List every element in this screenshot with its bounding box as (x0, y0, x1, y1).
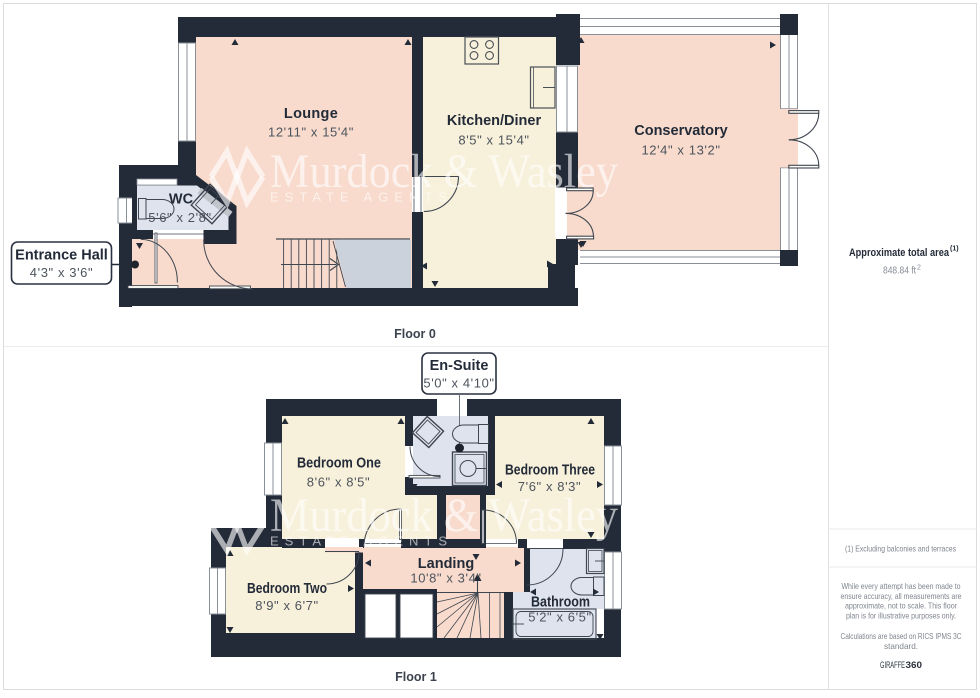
svg-text:Lounge: Lounge (284, 106, 338, 122)
svg-text:Bedroom One: Bedroom One (297, 456, 381, 472)
svg-text:5'2" x 6'5": 5'2" x 6'5" (528, 610, 591, 625)
svg-text:Kitchen/Diner: Kitchen/Diner (447, 113, 542, 129)
svg-text:ESTATE AGENTS: ESTATE AGENTS (270, 190, 453, 205)
svg-text:8'9" x 6'7": 8'9" x 6'7" (255, 598, 318, 613)
svg-text:Floor 0: Floor 0 (394, 327, 436, 341)
svg-text:Floor 1: Floor 1 (395, 670, 437, 684)
svg-text:360: 360 (906, 660, 923, 671)
svg-text:Calculations are based on RICS: Calculations are based on RICS IPMS 3C (841, 632, 962, 641)
svg-text:Conservatory: Conservatory (634, 123, 727, 139)
svg-text:(1) Excluding balconies and te: (1) Excluding balconies and terraces (845, 545, 956, 554)
svg-text:5'6" x 2'8": 5'6" x 2'8" (148, 210, 211, 225)
svg-text:848.84 ft: 848.84 ft (883, 265, 916, 277)
svg-text:Approximate total area: Approximate total area (849, 247, 950, 259)
svg-text:4'3" x 3'6": 4'3" x 3'6" (30, 265, 93, 280)
svg-text:En-Suite: En-Suite (430, 358, 489, 374)
svg-text:Bedroom Three: Bedroom Three (505, 463, 595, 479)
svg-text:10'8" x 3'4": 10'8" x 3'4" (410, 571, 481, 586)
svg-text:plan is for illustrative purpo: plan is for illustrative purposes only. (846, 611, 956, 620)
svg-text:2: 2 (917, 265, 921, 272)
svg-text:While every attempt has been m: While every attempt has been made to (842, 582, 961, 591)
svg-text:12'4" x 13'2": 12'4" x 13'2" (641, 143, 720, 158)
svg-text:(1): (1) (950, 246, 959, 253)
svg-text:Entrance Hall: Entrance Hall (15, 248, 108, 264)
svg-text:Bedroom Two: Bedroom Two (247, 581, 327, 597)
svg-text:Bathroom: Bathroom (531, 595, 590, 611)
svg-text:ESTATE AGENTS: ESTATE AGENTS (270, 534, 453, 549)
svg-text:approximate, not to scale. Thi: approximate, not to scale. This floor (845, 602, 957, 611)
svg-text:WC: WC (169, 192, 194, 208)
svg-text:standard.: standard. (884, 642, 918, 651)
svg-text:ensure accuracy, all measureme: ensure accuracy, all measurements are (841, 592, 962, 601)
svg-text:5'0" x 4'10": 5'0" x 4'10" (423, 376, 494, 391)
svg-text:GIRAFFE: GIRAFFE (880, 660, 905, 671)
svg-text:12'11" x 15'4": 12'11" x 15'4" (268, 125, 354, 140)
svg-text:8'6" x 8'5": 8'6" x 8'5" (307, 475, 370, 490)
